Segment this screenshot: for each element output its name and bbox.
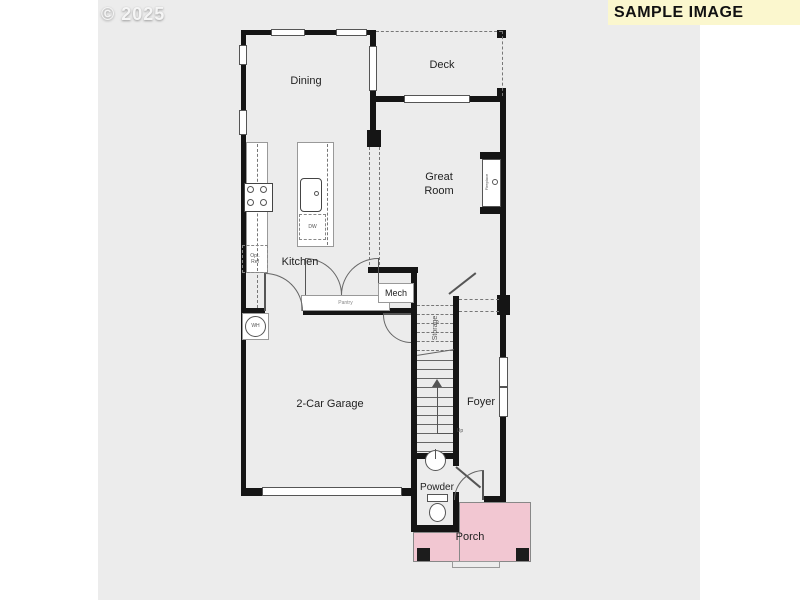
- up-label: Up: [453, 428, 467, 434]
- fireplace-label: Fireplace: [484, 165, 492, 199]
- great-room-label-2: Room: [424, 185, 453, 197]
- stair-tread: [417, 442, 453, 443]
- wall-right-greatroom: [500, 96, 506, 358]
- dishwasher-label: DW: [300, 215, 325, 239]
- sink-icon: [300, 178, 322, 212]
- counter-dashed-lower: [257, 275, 258, 308]
- stair-tread: [417, 360, 453, 361]
- kitchen-label: Kitchen: [276, 255, 324, 269]
- foyer-opening-dashed-2: [459, 311, 499, 312]
- burner-icon: [247, 186, 254, 193]
- wall-stub-kitchen-rail: [367, 130, 381, 147]
- window-dining-deck: [369, 46, 377, 91]
- stair-tread: [417, 369, 453, 370]
- wall-powder-right-a: [453, 458, 459, 466]
- stair-tread: [417, 397, 453, 398]
- up-arrow-head-icon: [432, 379, 442, 387]
- toilet-tank-icon: [427, 494, 448, 502]
- window-dining-top-1: [271, 29, 305, 36]
- water-heater-label: WH: [246, 317, 265, 336]
- window-dining-top-2: [336, 29, 367, 36]
- window-dining-left-1: [239, 45, 247, 65]
- deck-dashed-right: [502, 31, 503, 96]
- dishwasher: DW: [299, 214, 326, 240]
- deck-dashed-top: [376, 31, 502, 32]
- dining-label: Dining: [283, 74, 329, 88]
- up-arrow-elbow: [437, 433, 453, 434]
- stair-tread: [417, 406, 453, 407]
- stair-tread: [417, 387, 453, 388]
- island-centerline: [327, 144, 328, 245]
- burner-icon: [260, 199, 267, 206]
- stair-tread: [417, 424, 453, 425]
- burner-icon: [260, 186, 267, 193]
- garage-door: [262, 487, 402, 496]
- window-deck-slider: [404, 95, 470, 103]
- toilet-bowl-icon: [429, 503, 446, 522]
- floor-plan-page: © 2025 SAMPLE IMAGE Opt. Re: [0, 0, 800, 600]
- water-heater-icon: WH: [245, 316, 266, 337]
- storage-dashed-tread: [417, 305, 453, 306]
- powder-label: Powder: [415, 481, 459, 495]
- stair-tread: [417, 415, 453, 416]
- fireplace-flange-top: [480, 152, 502, 159]
- fireplace-flange-bottom: [480, 207, 502, 214]
- foyer-opening-dashed-1: [459, 299, 499, 300]
- porch-post-right: [516, 548, 529, 561]
- porch-label: Porch: [425, 530, 515, 544]
- fireplace-pilot-icon: [492, 179, 498, 185]
- porch-post-left: [417, 548, 430, 561]
- great-room-label-1: Great: [425, 171, 453, 183]
- great-room-label: Great Room: [413, 170, 465, 198]
- wall-stair-right: [453, 296, 459, 460]
- foyer-label: Foyer: [458, 395, 504, 409]
- garage-label: 2-Car Garage: [290, 397, 370, 411]
- opt-ref-label-2: Ref: [251, 259, 259, 265]
- window-dining-left-2: [239, 110, 247, 135]
- wall-stub-foyer-opening: [497, 295, 510, 315]
- sample-image-banner: SAMPLE IMAGE: [608, 0, 800, 25]
- deck-label: Deck: [422, 58, 462, 72]
- pantry-label: Pantry: [302, 296, 389, 310]
- porch-step: [452, 561, 500, 568]
- storage-label: Storage: [432, 307, 444, 349]
- faucet-icon: [314, 191, 319, 196]
- powder-faucet-icon: [435, 449, 436, 459]
- window-foyer-1: [499, 357, 508, 387]
- up-arrow-line: [437, 387, 438, 434]
- kitchen-rail-dashed-1: [369, 147, 370, 265]
- mech-label: Mech: [379, 284, 413, 302]
- optional-refrigerator: Opt. Ref: [242, 245, 268, 273]
- pantry-shelf: Pantry: [301, 295, 390, 311]
- mech-box: Mech: [378, 283, 414, 303]
- copyright-watermark: © 2025: [101, 4, 165, 25]
- burner-icon: [247, 199, 254, 206]
- wall-right-foyer: [500, 417, 506, 502]
- kitchen-rail-dashed-2: [379, 147, 380, 265]
